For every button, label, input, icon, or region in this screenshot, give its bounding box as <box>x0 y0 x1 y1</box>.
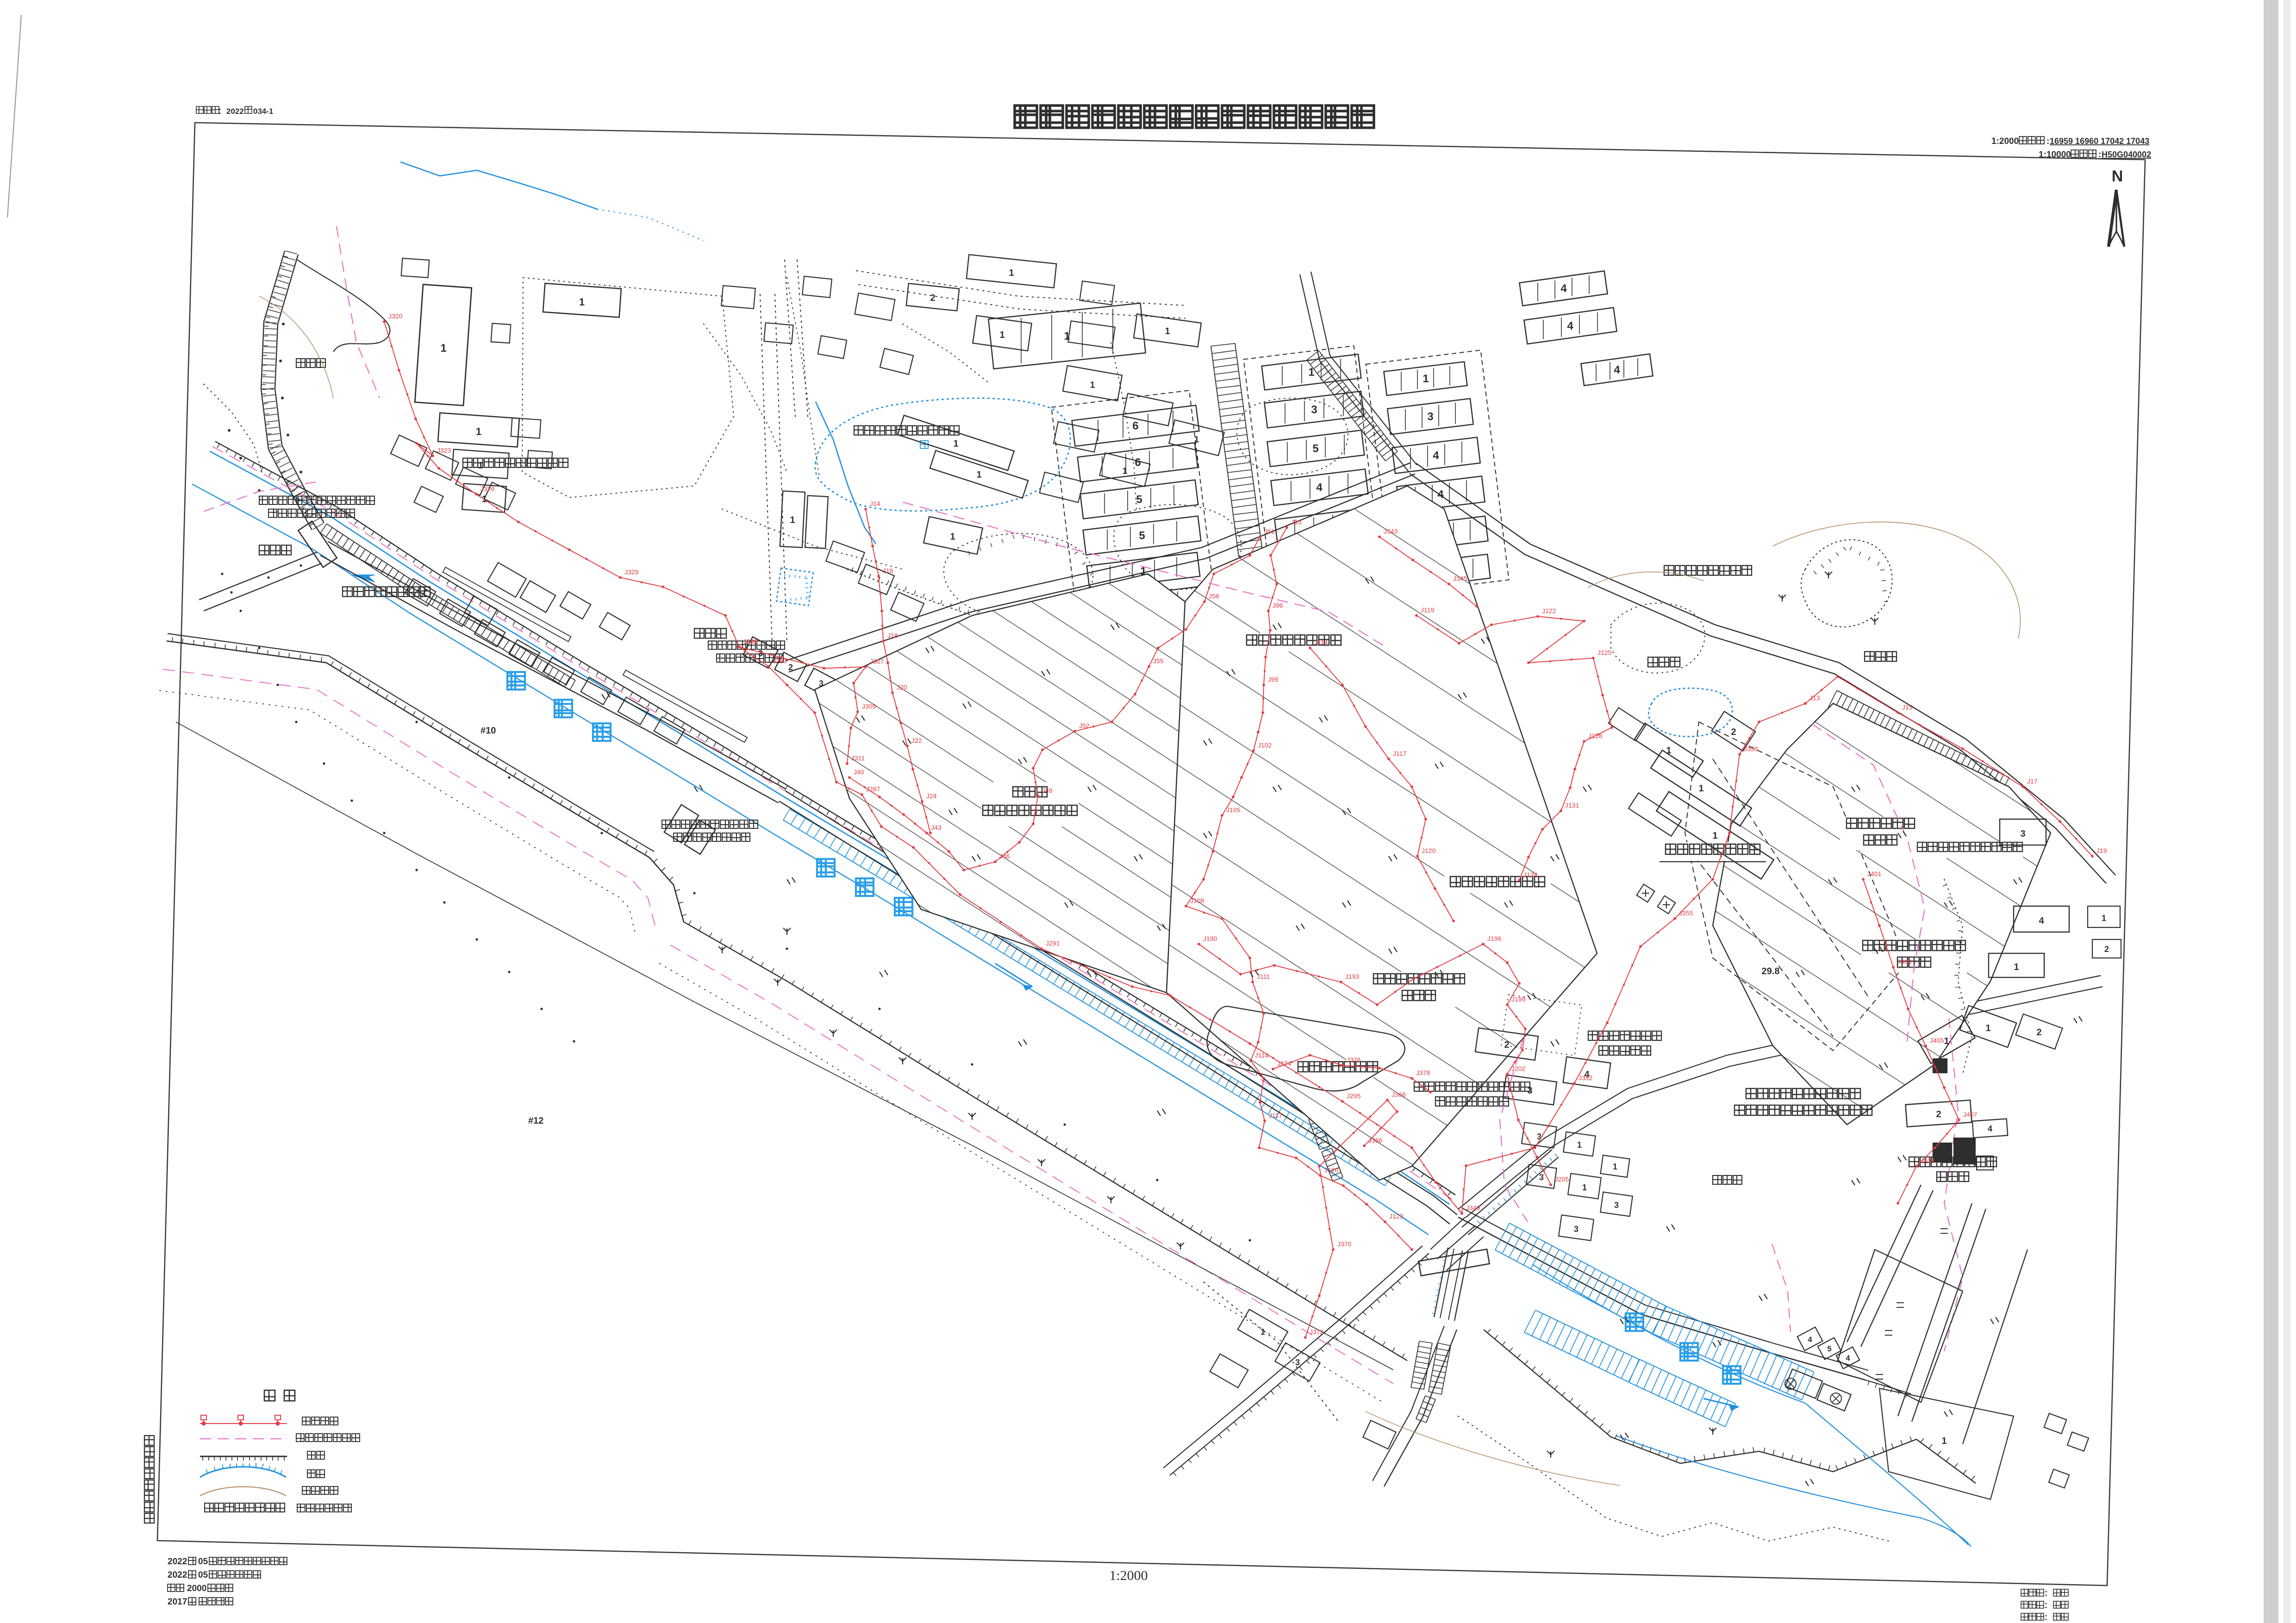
svg-text:2: 2 <box>1731 727 1736 737</box>
svg-text:J55: J55 <box>1153 657 1164 665</box>
svg-text:2022: 2022 <box>168 1557 187 1567</box>
svg-text:J403: J403 <box>1897 958 1912 965</box>
svg-text:：: ： <box>2044 1614 2052 1622</box>
svg-text:1: 1 <box>1090 380 1095 390</box>
svg-text:1: 1 <box>1698 784 1703 794</box>
svg-text:J108: J108 <box>1190 897 1204 904</box>
svg-text:J49: J49 <box>1042 787 1053 794</box>
svg-text:J320: J320 <box>388 312 403 320</box>
svg-text:1: 1 <box>1009 268 1014 278</box>
svg-text:4: 4 <box>1614 364 1620 376</box>
svg-text:J96: J96 <box>1273 602 1283 609</box>
svg-text:1: 1 <box>476 426 481 437</box>
svg-text:J193: J193 <box>1345 973 1360 980</box>
svg-text:J102: J102 <box>1258 741 1272 749</box>
svg-text:J349: J349 <box>1466 1204 1480 1212</box>
svg-text:：: ： <box>218 107 226 116</box>
svg-text:J19: J19 <box>2096 847 2107 854</box>
svg-text:1:2000: 1:2000 <box>1991 137 2019 146</box>
svg-text:H50G040002: H50G040002 <box>2102 150 2151 159</box>
svg-text:J61: J61 <box>1264 528 1275 535</box>
svg-text:3: 3 <box>1537 1132 1541 1141</box>
svg-text:J119: J119 <box>1421 606 1435 614</box>
svg-text:4: 4 <box>1560 282 1567 295</box>
svg-text:J40: J40 <box>854 768 864 776</box>
svg-text:3: 3 <box>1539 1173 1544 1182</box>
svg-text:J117: J117 <box>1269 1112 1283 1119</box>
svg-text:J123: J123 <box>1389 1213 1404 1220</box>
svg-text:1: 1 <box>1064 330 1070 342</box>
svg-text:J407: J407 <box>1963 1111 1978 1118</box>
svg-text:J120: J120 <box>1422 847 1436 854</box>
svg-text:J311: J311 <box>851 754 865 762</box>
svg-text:J401: J401 <box>1867 870 1882 877</box>
svg-text:2: 2 <box>2104 945 2109 954</box>
svg-text:J99: J99 <box>1268 676 1279 683</box>
svg-text:J376: J376 <box>1347 1056 1361 1063</box>
svg-text:J120: J120 <box>1324 1166 1339 1174</box>
svg-text:J326: J326 <box>480 485 495 492</box>
svg-text:J309: J309 <box>862 703 876 710</box>
svg-text:05: 05 <box>198 1570 208 1580</box>
svg-text:1: 1 <box>1260 1327 1265 1337</box>
svg-text:#12: #12 <box>528 1116 543 1126</box>
svg-text:5: 5 <box>1827 1344 1831 1353</box>
svg-text:2: 2 <box>788 663 793 672</box>
svg-text:1: 1 <box>579 296 585 308</box>
svg-text:：: ： <box>2044 1590 2052 1598</box>
svg-text:5: 5 <box>1312 442 1318 455</box>
svg-text:3: 3 <box>1295 1358 1300 1367</box>
svg-text:J295: J295 <box>1347 1092 1361 1100</box>
svg-text:J199: J199 <box>1511 995 1526 1003</box>
svg-text:2022: 2022 <box>226 107 244 116</box>
svg-text:5: 5 <box>1136 493 1142 506</box>
svg-text:1: 1 <box>1712 831 1717 841</box>
svg-text:1: 1 <box>1582 1183 1587 1192</box>
svg-text:1: 1 <box>1613 1162 1617 1171</box>
svg-text:1: 1 <box>1985 1023 1990 1033</box>
svg-text:J128: J128 <box>1588 732 1603 740</box>
svg-text:1: 1 <box>440 342 446 354</box>
svg-text:1: 1 <box>1165 326 1170 336</box>
svg-text:J409: J409 <box>1921 1157 1935 1164</box>
svg-text:J18: J18 <box>887 632 898 639</box>
svg-text:J93: J93 <box>1291 518 1302 526</box>
svg-text:J190: J190 <box>1203 935 1217 942</box>
svg-text:1: 1 <box>976 470 981 480</box>
svg-text:J345: J345 <box>1453 575 1467 582</box>
svg-text:1:2000: 1:2000 <box>1109 1568 1148 1583</box>
svg-text:J368: J368 <box>1391 1091 1406 1098</box>
svg-text:J22: J22 <box>911 737 922 744</box>
svg-text:J52: J52 <box>1079 722 1090 729</box>
svg-text::: : <box>2046 137 2049 146</box>
svg-text:J366: J366 <box>1368 1137 1383 1144</box>
svg-text:4: 4 <box>1433 449 1439 462</box>
svg-text:3: 3 <box>2020 829 2025 839</box>
svg-text:：: ： <box>2044 1602 2052 1610</box>
svg-text:2: 2 <box>1504 1040 1509 1050</box>
svg-text:J355: J355 <box>1679 909 1693 917</box>
svg-text:J43: J43 <box>931 824 942 831</box>
svg-text:1: 1 <box>790 515 795 525</box>
svg-text:J13: J13 <box>1809 694 1820 702</box>
svg-text:J131: J131 <box>1565 802 1579 809</box>
svg-text:5: 5 <box>1139 529 1145 542</box>
svg-text:4: 4 <box>1808 1335 1812 1344</box>
svg-text:1: 1 <box>1423 373 1429 385</box>
svg-text:J16: J16 <box>883 567 893 574</box>
svg-text:4: 4 <box>1316 481 1323 494</box>
svg-text:6: 6 <box>1132 420 1138 432</box>
svg-text:1: 1 <box>953 439 958 449</box>
svg-text:J17: J17 <box>2027 777 2038 785</box>
svg-text:1: 1 <box>1944 1036 1949 1046</box>
svg-text:J117: J117 <box>1393 750 1407 757</box>
svg-text:J370: J370 <box>1337 1240 1352 1248</box>
svg-text:4: 4 <box>1846 1354 1850 1362</box>
svg-text:J14: J14 <box>870 500 880 507</box>
svg-text:05: 05 <box>198 1557 208 1567</box>
svg-text:J15: J15 <box>1902 703 1913 711</box>
svg-text:6: 6 <box>1135 456 1141 469</box>
svg-text:J378: J378 <box>1416 1069 1430 1076</box>
svg-text:#10: #10 <box>480 726 496 736</box>
svg-text:3: 3 <box>1614 1200 1619 1210</box>
svg-text:J305: J305 <box>743 638 758 645</box>
svg-text:1: 1 <box>1577 1140 1582 1150</box>
svg-text:J114: J114 <box>1255 1051 1269 1059</box>
svg-text:1: 1 <box>999 330 1004 340</box>
svg-text:J114: J114 <box>1314 639 1328 646</box>
svg-text:J46: J46 <box>999 852 1010 860</box>
svg-text:4: 4 <box>2039 916 2044 926</box>
svg-text:J205: J205 <box>1555 1175 1569 1183</box>
svg-text:J122: J122 <box>1542 607 1556 615</box>
svg-text:J307: J307 <box>870 658 884 665</box>
svg-text:J405: J405 <box>1930 1037 1944 1044</box>
svg-text:J352: J352 <box>1578 1074 1593 1082</box>
svg-text:J196: J196 <box>1487 935 1502 942</box>
svg-text:J125: J125 <box>1597 649 1612 656</box>
svg-text:3: 3 <box>1427 410 1433 423</box>
svg-text:2017: 2017 <box>168 1597 187 1607</box>
svg-text:1: 1 <box>2014 962 2019 972</box>
svg-text:1: 1 <box>1308 366 1314 379</box>
svg-text:2: 2 <box>1936 1109 1941 1119</box>
svg-text:J202: J202 <box>1511 1065 1526 1072</box>
svg-text:034-1: 034-1 <box>253 107 273 116</box>
svg-text:3: 3 <box>1574 1225 1578 1234</box>
svg-text:J58: J58 <box>1209 592 1219 600</box>
svg-text:J291: J291 <box>1046 939 1060 947</box>
svg-text:4: 4 <box>1567 320 1573 332</box>
svg-text:N: N <box>2112 168 2123 185</box>
svg-text:J24: J24 <box>926 792 937 800</box>
svg-text:1: 1 <box>1123 466 1128 476</box>
svg-text:J343: J343 <box>1384 528 1398 535</box>
svg-text:1: 1 <box>1941 1436 1947 1446</box>
svg-text:29.8: 29.8 <box>1762 966 1780 976</box>
svg-text:J374: J374 <box>1277 1060 1291 1067</box>
svg-text:J287: J287 <box>866 785 880 793</box>
svg-text:2000: 2000 <box>187 1584 206 1593</box>
svg-text:J111: J111 <box>1257 973 1270 980</box>
svg-text:1: 1 <box>478 460 483 471</box>
svg-text:J134: J134 <box>1523 871 1538 878</box>
svg-text:J372: J372 <box>1310 1328 1324 1336</box>
svg-text:4: 4 <box>1988 1124 1992 1133</box>
svg-text:J105: J105 <box>1226 806 1241 814</box>
svg-text:J323: J323 <box>437 447 451 454</box>
svg-text:2: 2 <box>2036 1027 2041 1038</box>
svg-text:16959 16960 17042 17043: 16959 16960 17042 17043 <box>2050 137 2149 146</box>
svg-text:1: 1 <box>2102 914 2106 923</box>
svg-text:J329: J329 <box>624 568 639 576</box>
svg-text:3: 3 <box>1311 404 1317 416</box>
svg-text:2022: 2022 <box>168 1570 187 1580</box>
svg-text:1: 1 <box>950 532 955 542</box>
svg-text:2: 2 <box>930 293 935 303</box>
svg-text:4: 4 <box>1437 488 1444 501</box>
svg-text:J358: J358 <box>1744 745 1758 752</box>
svg-text:J20: J20 <box>897 684 907 691</box>
